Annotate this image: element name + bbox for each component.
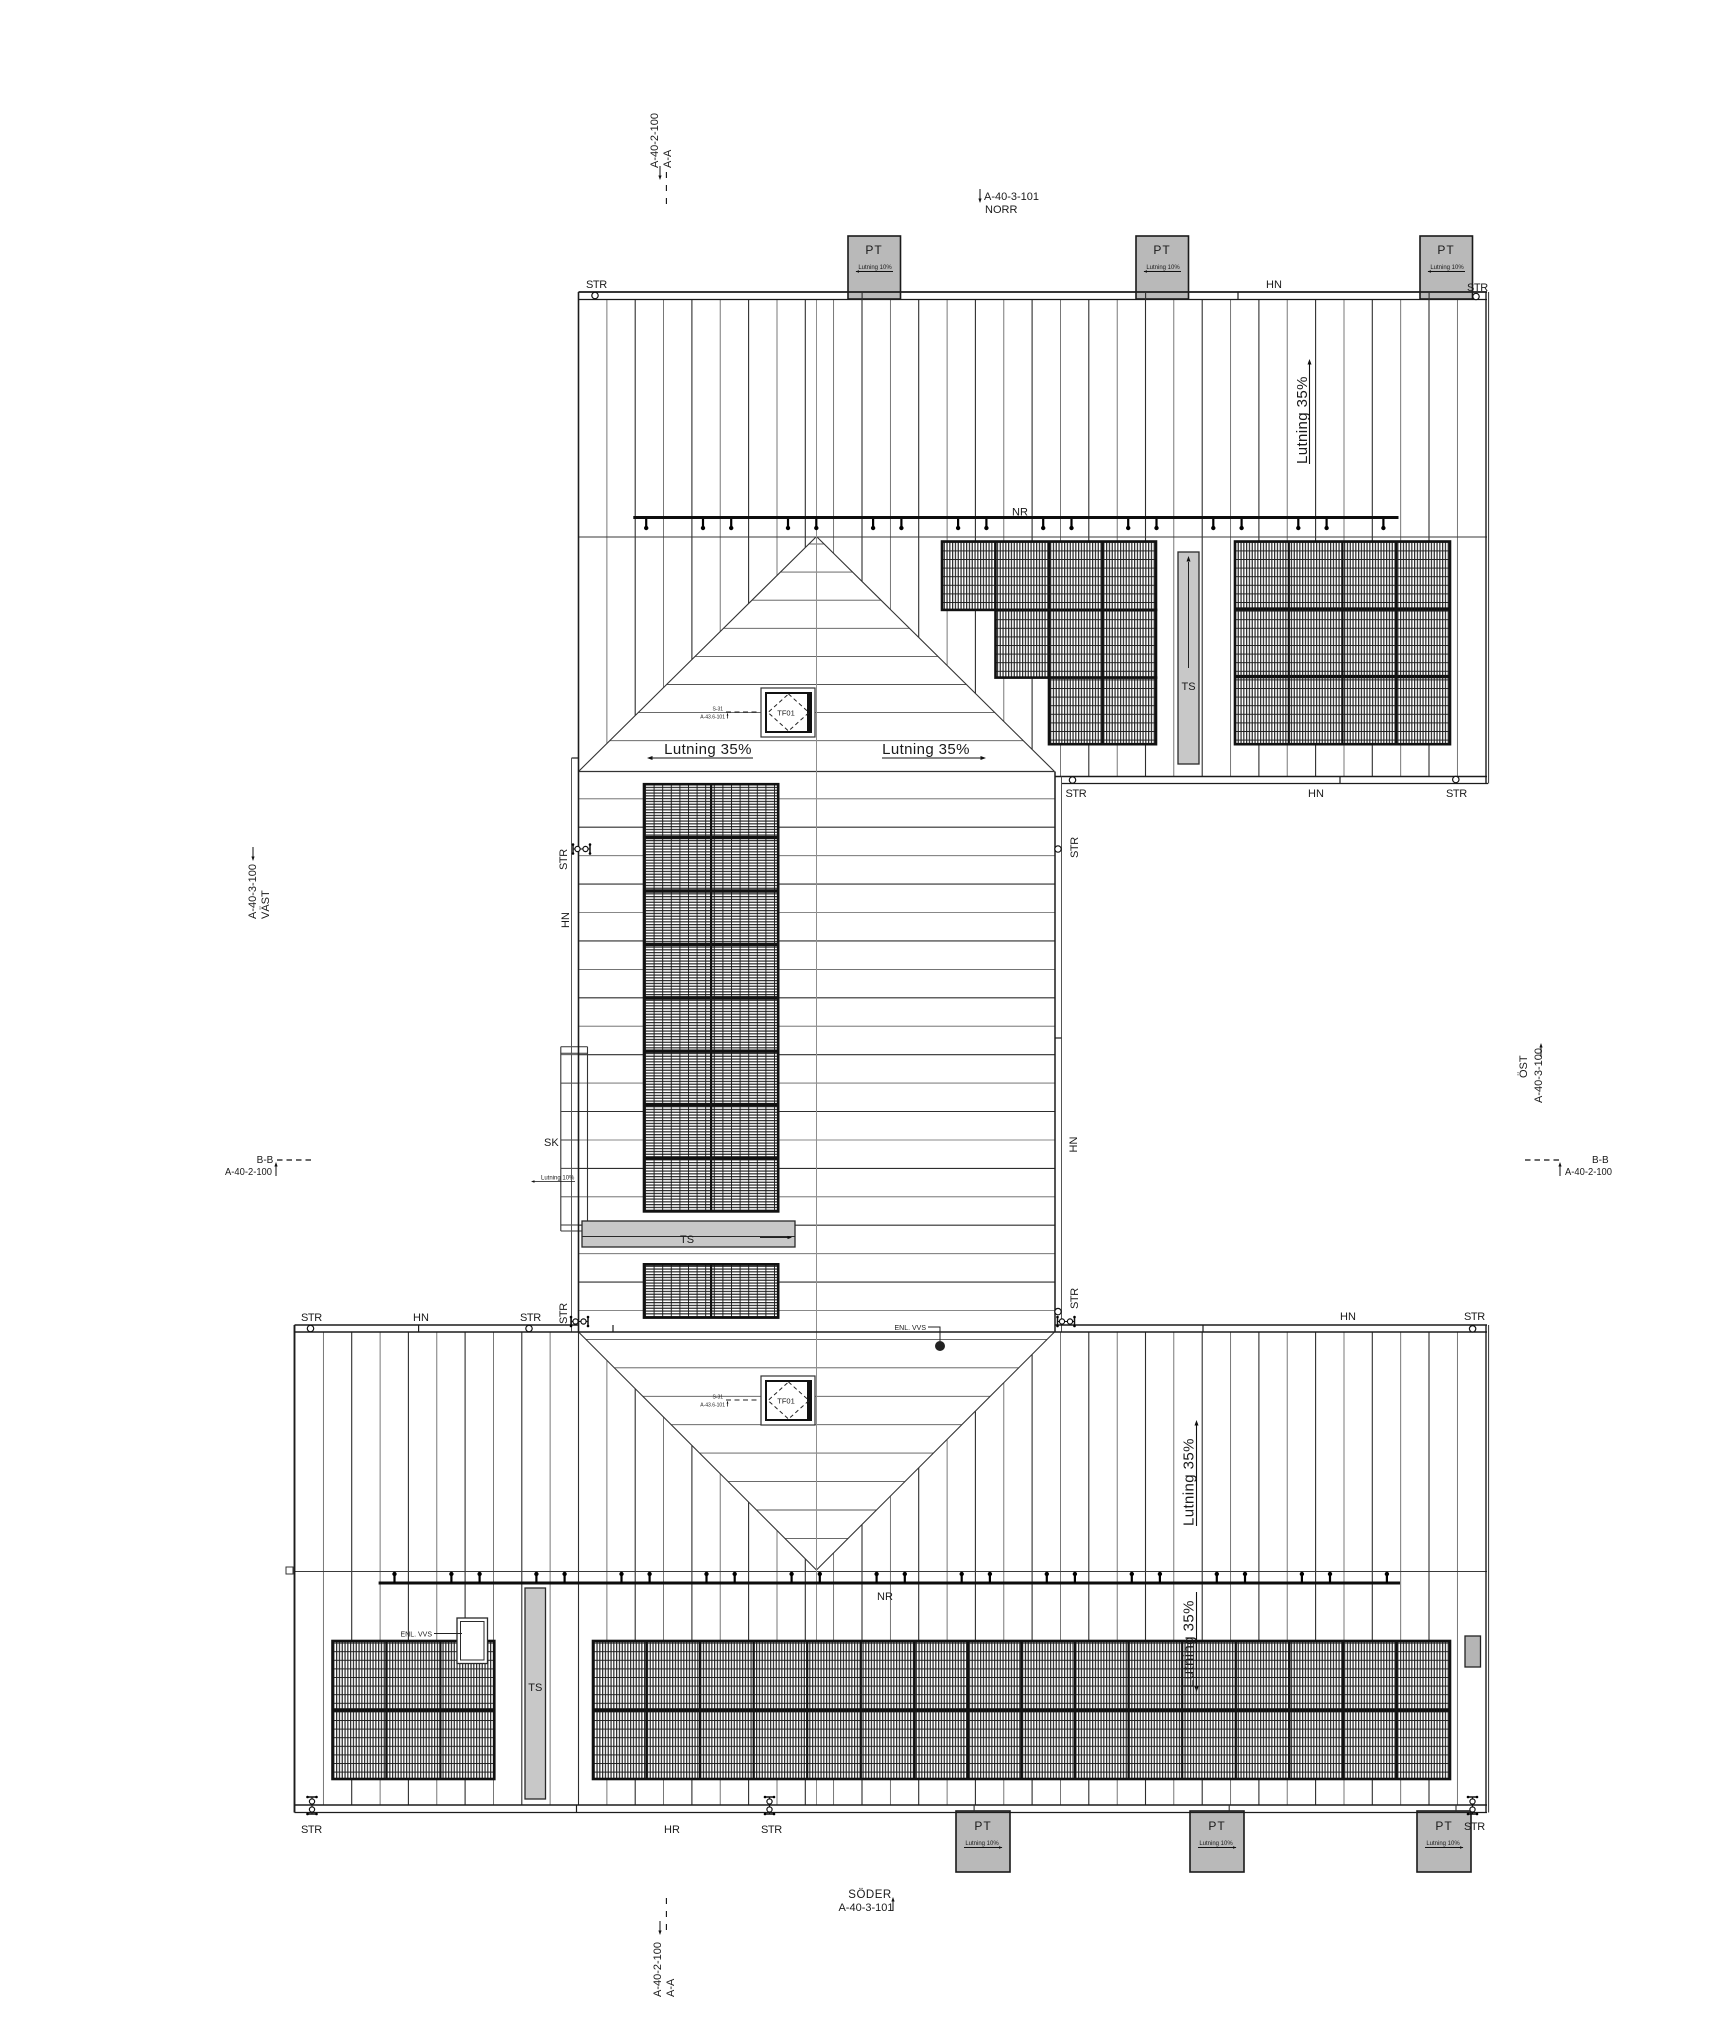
svg-text:PT: PT — [1437, 243, 1454, 257]
svg-text:ENL. VVS: ENL. VVS — [894, 1325, 926, 1332]
svg-text:SÖDER: SÖDER — [848, 1889, 891, 1901]
svg-text:STR: STR — [1069, 1288, 1081, 1309]
svg-text:STR: STR — [1467, 282, 1488, 294]
svg-text:S-31: S-31 — [712, 707, 723, 713]
svg-text:STR: STR — [761, 1824, 782, 1836]
svg-text:Lutning 35%: Lutning 35% — [1294, 376, 1311, 464]
svg-text:STR: STR — [301, 1824, 322, 1836]
svg-text:NR: NR — [877, 1591, 893, 1603]
svg-text:HR: HR — [664, 1824, 680, 1836]
svg-text:HN: HN — [1308, 788, 1324, 800]
svg-text:A-40-2-100: A-40-2-100 — [652, 1942, 664, 1997]
svg-text:HN: HN — [1068, 1137, 1080, 1153]
svg-text:A-40-2-100: A-40-2-100 — [649, 113, 661, 168]
svg-text:ENL. VVS: ENL. VVS — [400, 1632, 432, 1639]
svg-text:STR: STR — [301, 1312, 322, 1324]
svg-text:A-A: A-A — [662, 149, 674, 168]
svg-text:HN: HN — [1340, 1311, 1356, 1323]
svg-text:STR: STR — [1464, 1311, 1485, 1323]
svg-text:STR: STR — [1069, 837, 1081, 858]
svg-text:A-40-3-101: A-40-3-101 — [984, 191, 1039, 203]
svg-text:A-40-2-100: A-40-2-100 — [225, 1167, 272, 1178]
svg-text:TS: TS — [528, 1682, 542, 1694]
svg-text:PT: PT — [974, 1819, 991, 1833]
svg-text:Lutning 10%: Lutning 10% — [965, 1841, 999, 1847]
svg-text:Lutning 10%: Lutning 10% — [1430, 265, 1464, 271]
svg-text:S-31: S-31 — [712, 1395, 723, 1401]
svg-text:A-43.6-101: A-43.6-101 — [700, 715, 725, 721]
svg-text:TF01: TF01 — [777, 709, 795, 718]
svg-text:A-40-3-100: A-40-3-100 — [1533, 1048, 1545, 1103]
svg-text:Lutning 10%: Lutning 10% — [1426, 1841, 1460, 1847]
svg-text:STR: STR — [1066, 788, 1087, 800]
svg-text:PT: PT — [1208, 1819, 1225, 1833]
svg-text:HN: HN — [1266, 279, 1282, 291]
svg-text:TS: TS — [680, 1234, 694, 1246]
svg-text:STR: STR — [558, 1303, 570, 1324]
svg-text:PT: PT — [1435, 1819, 1452, 1833]
svg-text:Lutning 10%: Lutning 10% — [1199, 1841, 1233, 1847]
svg-text:TS: TS — [1181, 681, 1195, 693]
svg-text:A-43.6-101: A-43.6-101 — [700, 1403, 725, 1409]
svg-text:SK: SK — [544, 1137, 559, 1149]
svg-text:NR: NR — [1012, 507, 1028, 519]
svg-text:PT: PT — [865, 243, 882, 257]
svg-text:Lutning 35%: Lutning 35% — [1181, 1438, 1198, 1526]
svg-text:A-40-3-100: A-40-3-100 — [247, 864, 259, 919]
svg-text:Lutning 35%: Lutning 35% — [1181, 1600, 1198, 1688]
svg-text:A-40-2-100: A-40-2-100 — [1565, 1167, 1612, 1178]
svg-text:Lutning 35%: Lutning 35% — [664, 741, 752, 758]
svg-text:VÄST: VÄST — [260, 890, 272, 919]
svg-text:A-40-3-101: A-40-3-101 — [838, 1902, 893, 1914]
svg-text:STR: STR — [1446, 788, 1467, 800]
svg-text:Lutning 35%: Lutning 35% — [882, 741, 970, 758]
svg-text:HN: HN — [413, 1312, 429, 1324]
svg-text:Lutning 10%: Lutning 10% — [541, 1176, 575, 1182]
svg-text:PT: PT — [1153, 243, 1170, 257]
svg-text:B-B: B-B — [1592, 1155, 1609, 1166]
svg-text:ÖST: ÖST — [1518, 1055, 1530, 1078]
svg-text:Lutning 10%: Lutning 10% — [858, 265, 892, 271]
svg-text:B-B: B-B — [257, 1155, 274, 1166]
svg-text:Lutning 10%: Lutning 10% — [1146, 265, 1180, 271]
svg-text:STR: STR — [520, 1312, 541, 1324]
svg-text:TF01: TF01 — [777, 1397, 795, 1406]
svg-text:STR: STR — [586, 279, 607, 291]
svg-text:A-A: A-A — [665, 1978, 677, 1997]
svg-text:HN: HN — [560, 912, 572, 928]
svg-text:STR: STR — [1464, 1821, 1485, 1833]
svg-text:NORR: NORR — [985, 204, 1017, 216]
svg-text:STR: STR — [558, 849, 570, 870]
